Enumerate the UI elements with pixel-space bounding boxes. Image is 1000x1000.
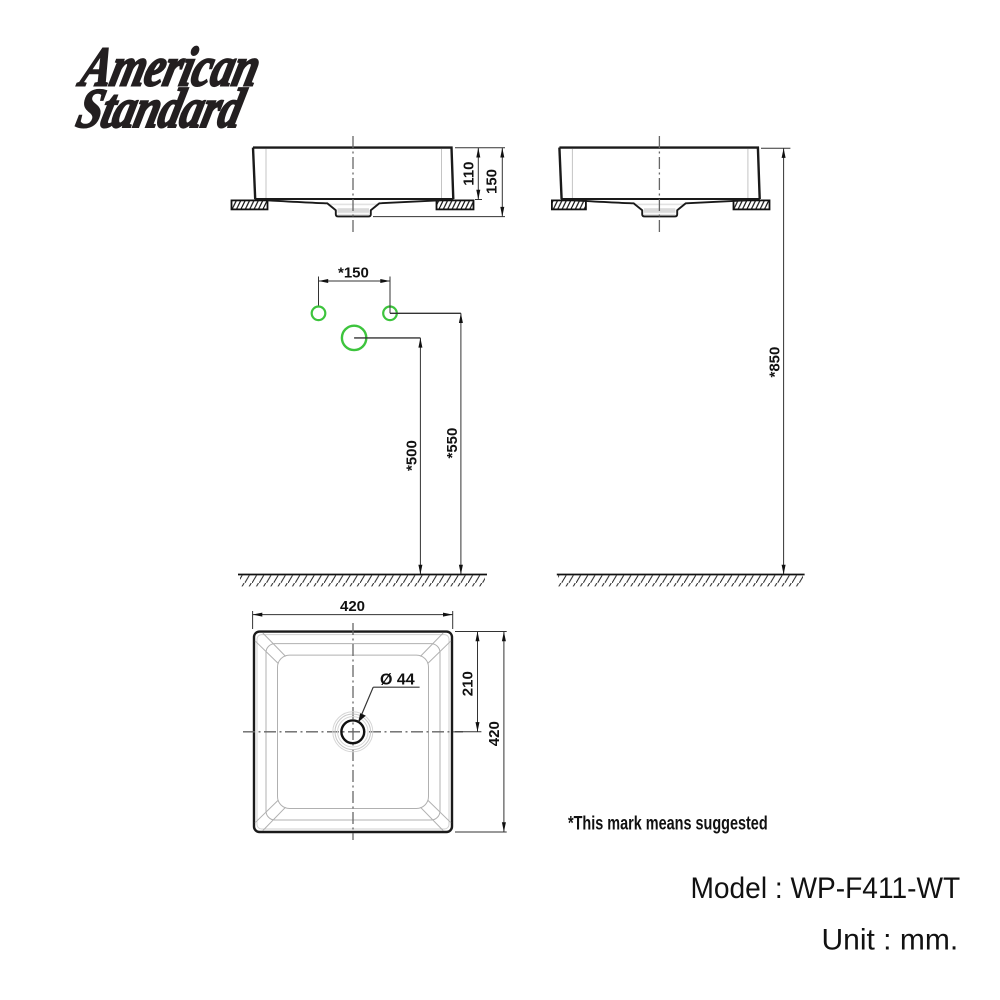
svg-text:*This mark means suggested: *This mark means suggested (568, 812, 768, 833)
svg-text:*850: *850 (767, 347, 784, 378)
svg-text:150: 150 (484, 169, 501, 194)
svg-text:Model : WP-F411-WT: Model : WP-F411-WT (691, 872, 961, 905)
svg-text:210: 210 (460, 671, 477, 696)
svg-text:Unit : mm.: Unit : mm. (822, 924, 959, 957)
svg-text:Ø 44: Ø 44 (380, 672, 415, 689)
svg-text:110: 110 (461, 161, 478, 185)
svg-text:*550: *550 (444, 428, 461, 459)
svg-text:420: 420 (340, 598, 365, 615)
svg-text:Standard: Standard (71, 78, 251, 140)
svg-text:*150: *150 (338, 265, 369, 282)
svg-text:420: 420 (486, 721, 503, 746)
svg-text:*500: *500 (403, 440, 420, 471)
